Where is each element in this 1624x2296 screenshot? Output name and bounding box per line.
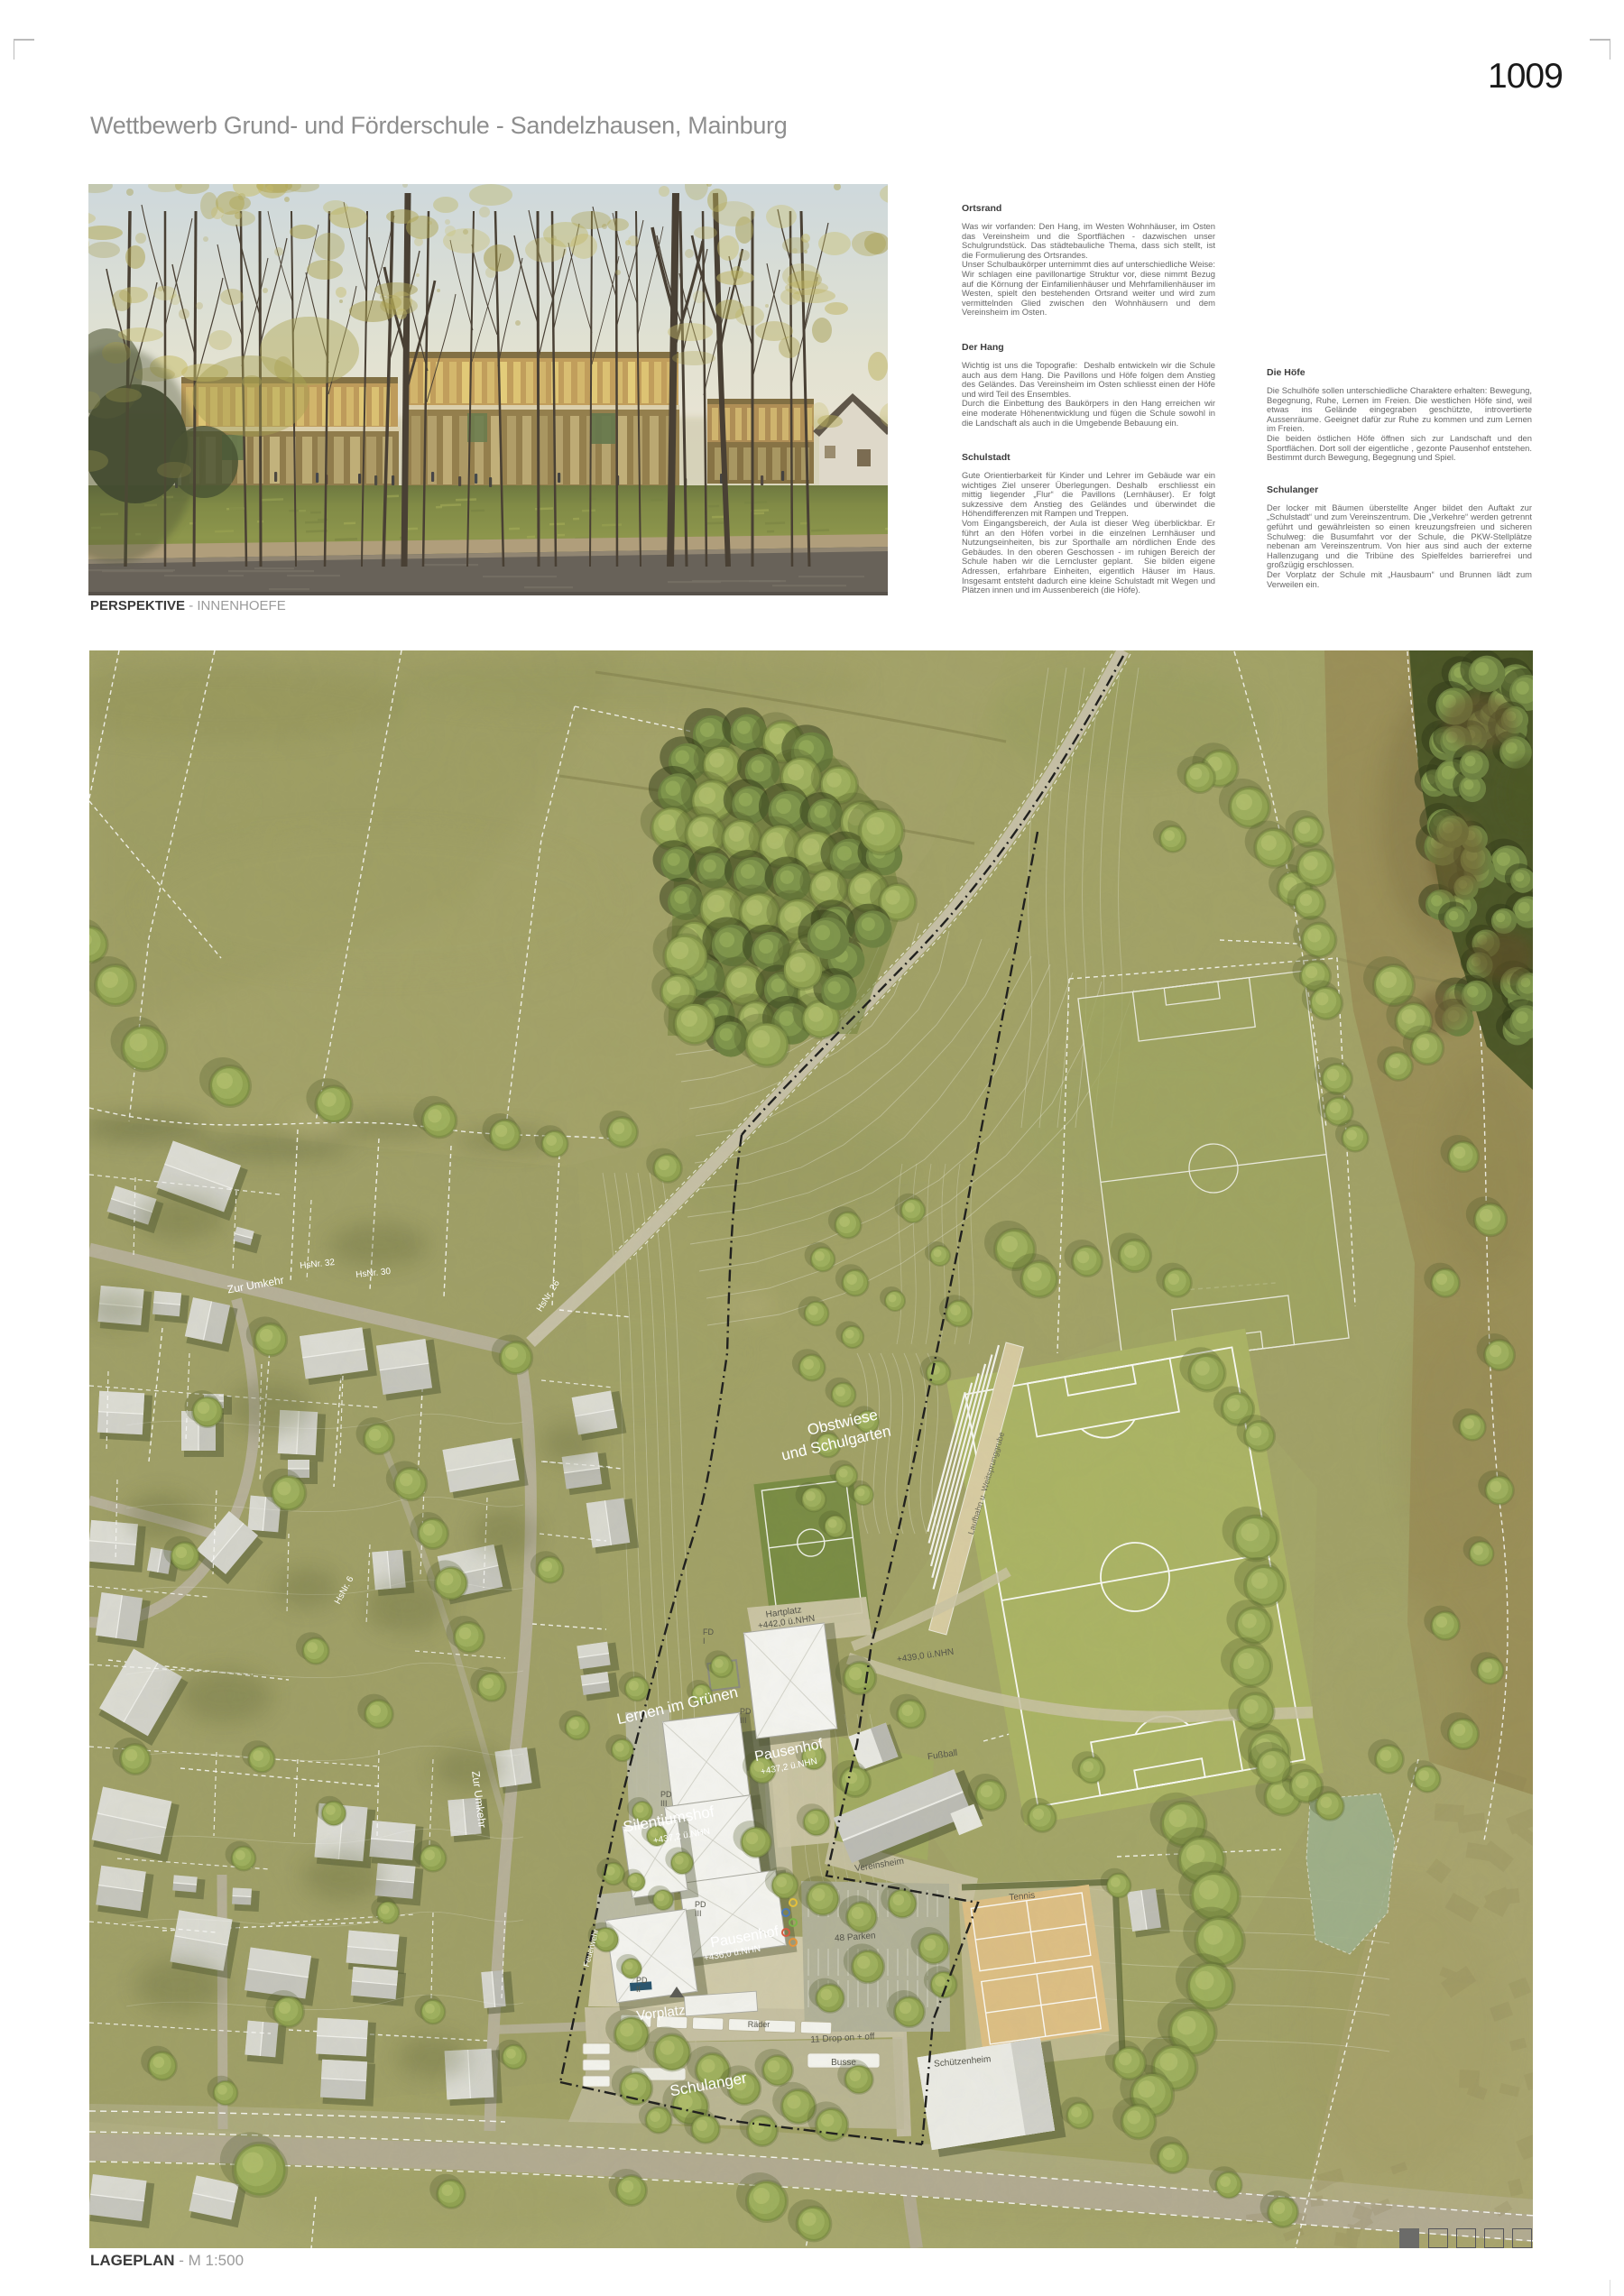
svg-text:Busse: Busse xyxy=(831,2058,856,2068)
svg-text:FD: FD xyxy=(703,1627,714,1637)
svg-text:PD: PD xyxy=(660,1790,672,1799)
svg-text:PD: PD xyxy=(695,1900,706,1909)
svg-text:Räder: Räder xyxy=(748,2020,770,2029)
svg-text:I: I xyxy=(703,1637,706,1646)
svg-text:PD: PD xyxy=(636,1976,648,1985)
svg-text:II: II xyxy=(636,1985,641,1994)
svg-text:III: III xyxy=(695,1909,702,1918)
svg-text:III: III xyxy=(740,1716,747,1725)
svg-text:III: III xyxy=(660,1799,668,1808)
svg-text:PD: PD xyxy=(740,1707,752,1716)
